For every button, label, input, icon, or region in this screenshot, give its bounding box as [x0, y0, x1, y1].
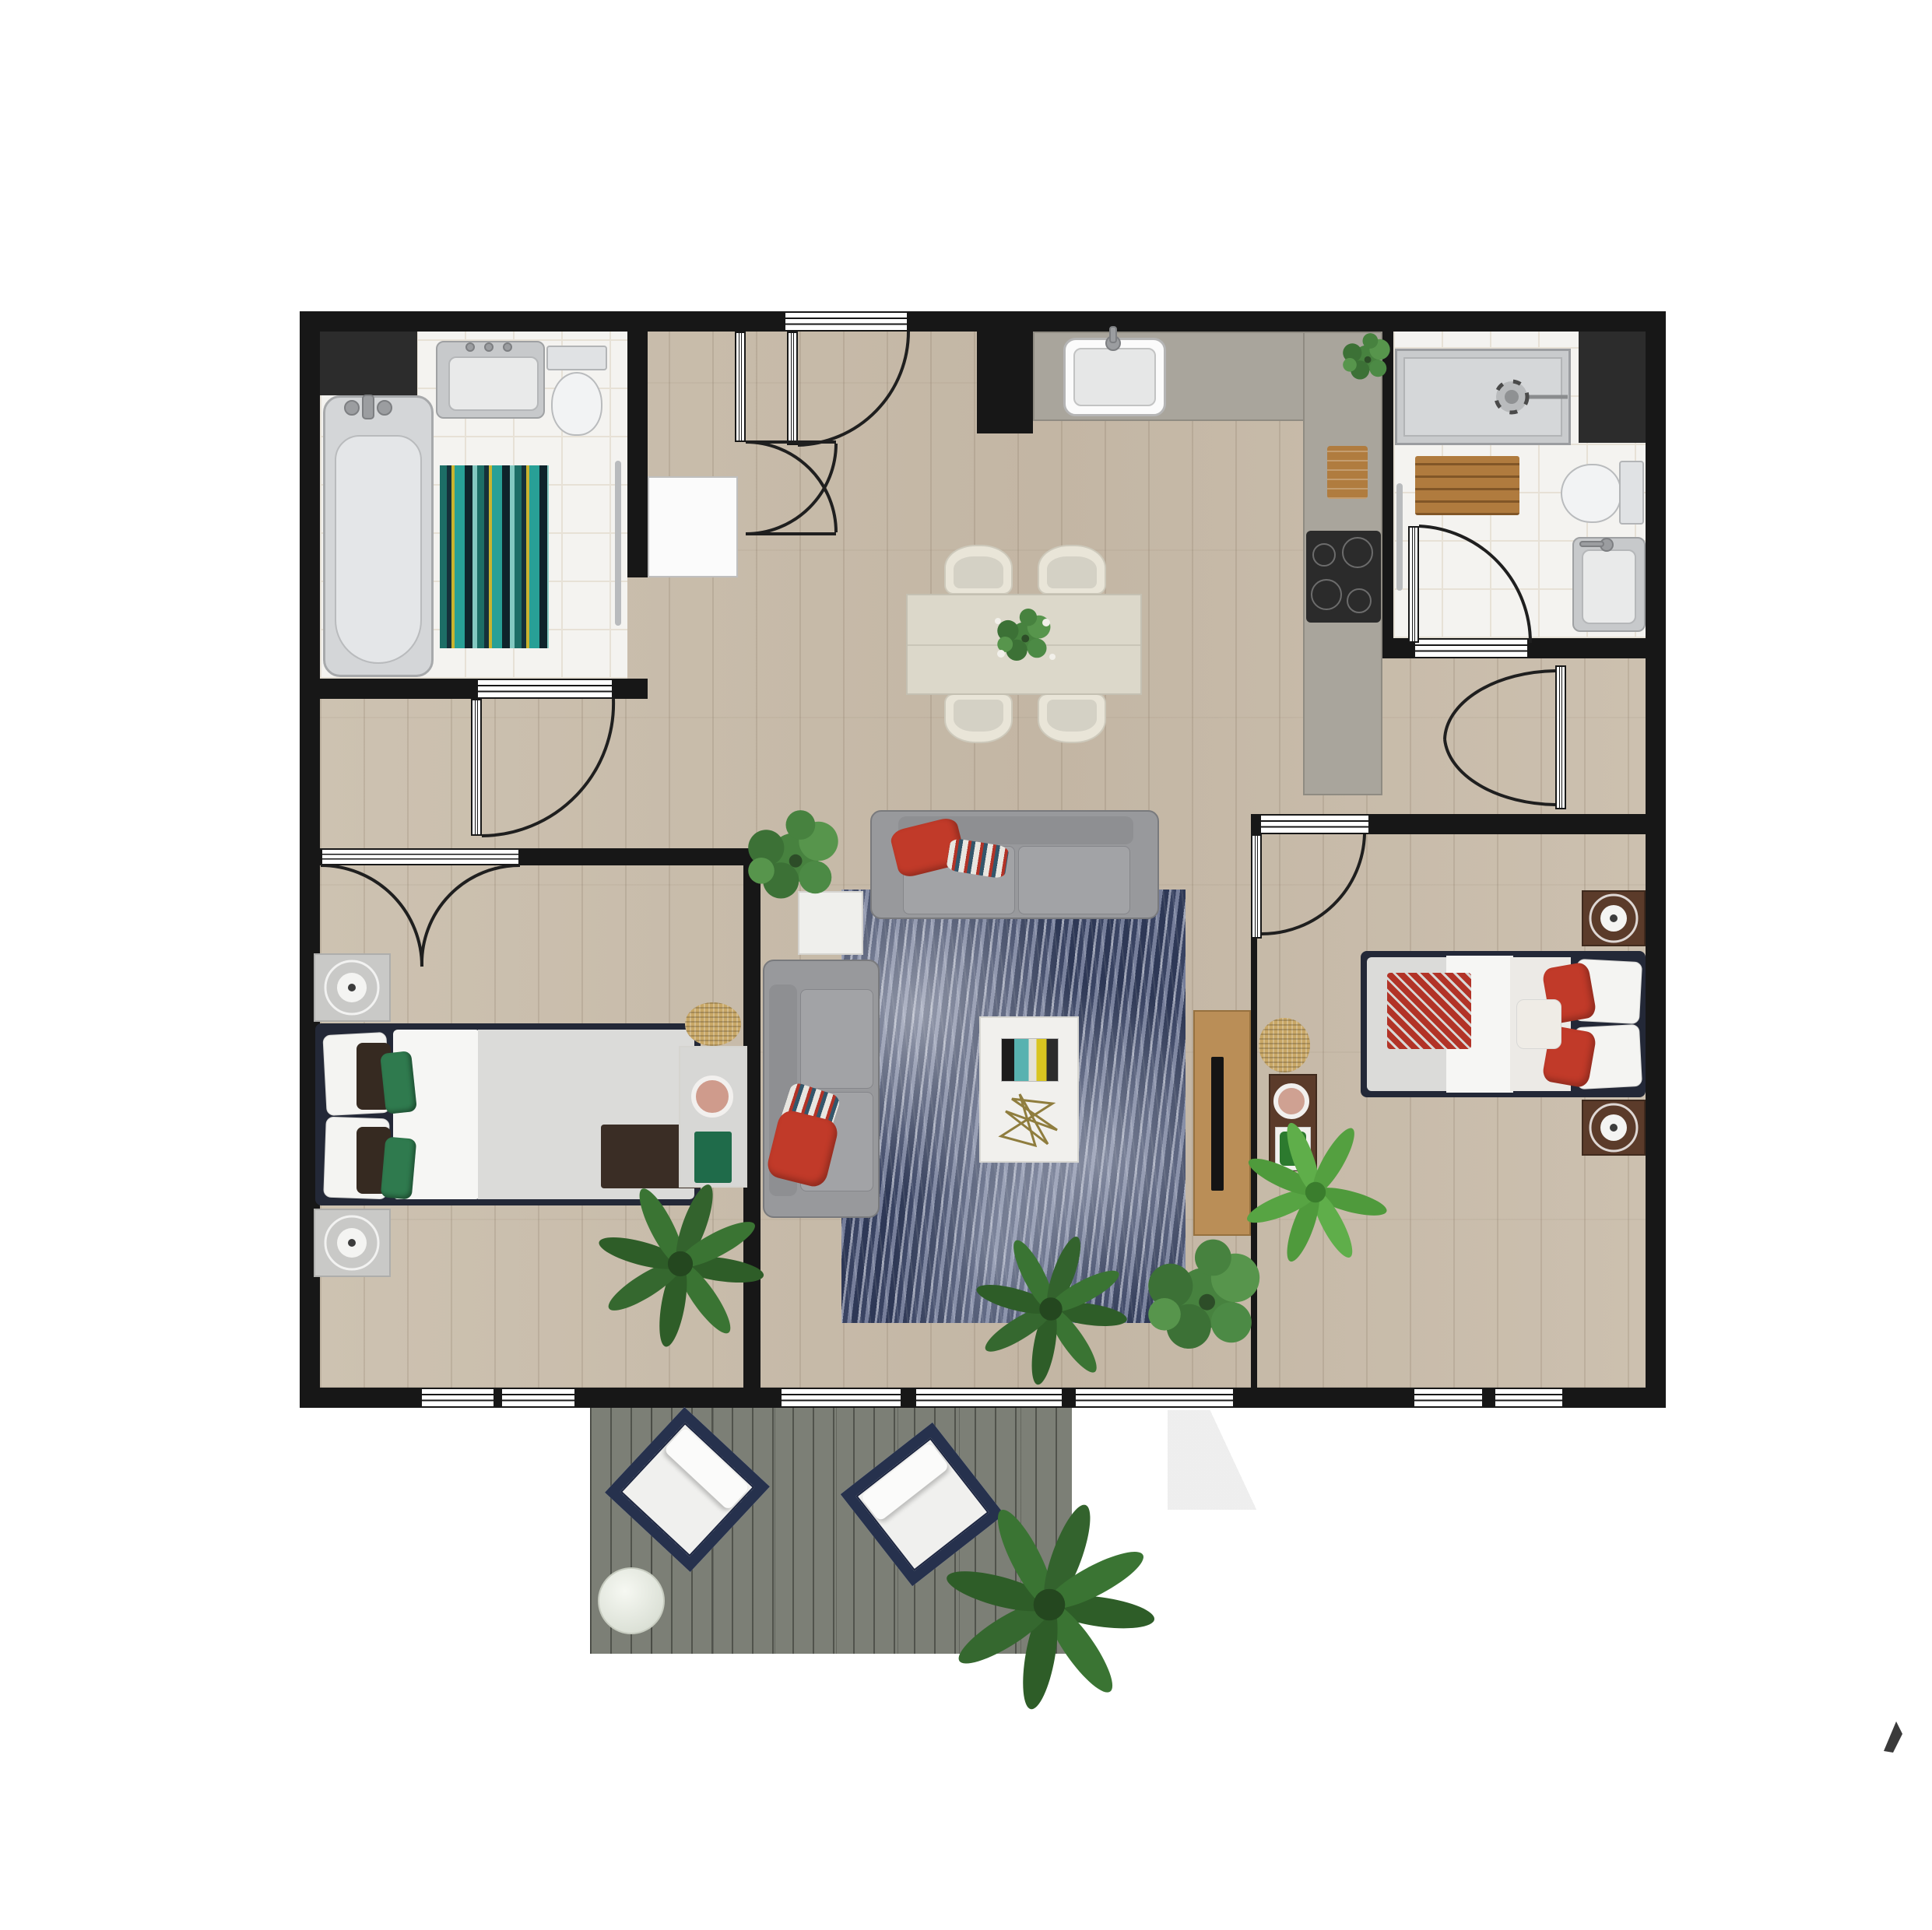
living-plant-top — [748, 810, 838, 898]
faucet-details — [345, 327, 1613, 551]
living-plant-bottom — [974, 1233, 1129, 1387]
dining-centerpiece-plant — [995, 609, 1056, 661]
shower-head — [1496, 381, 1568, 412]
nightstand-lamps — [325, 895, 1637, 1269]
kitchen-counter-plant — [1343, 333, 1390, 379]
cursor-arrow — [1884, 1721, 1902, 1753]
bedroom2-plant — [1243, 1120, 1389, 1265]
deck-plant — [943, 1500, 1156, 1711]
floor-plan-canvas — [0, 0, 1932, 1930]
living-plant-corner — [1148, 1240, 1259, 1349]
plan-symbol-overlay — [0, 0, 1932, 1930]
door-swing-symbols — [321, 332, 1555, 967]
bedroom1-plant — [596, 1181, 765, 1349]
wire-sculpture — [1001, 1094, 1057, 1146]
